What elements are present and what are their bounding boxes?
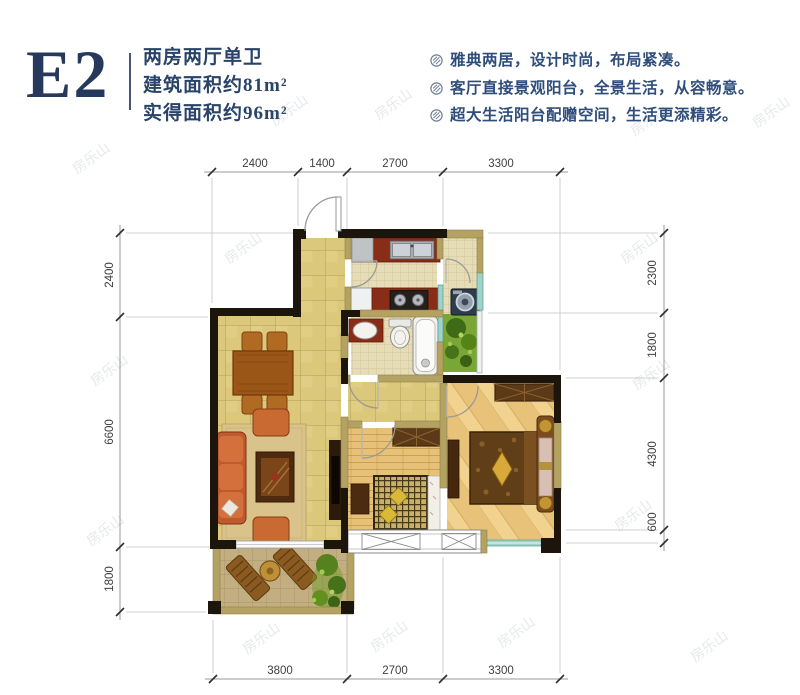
- bay-window: [348, 530, 481, 553]
- wardrobe-master: [495, 384, 554, 401]
- fridge: [351, 288, 372, 312]
- utility-window: [477, 272, 483, 310]
- bathtub: [413, 316, 438, 375]
- dimension-labels-top: 2400 1400 2700 3300: [242, 158, 514, 170]
- toilet: [389, 319, 411, 348]
- kitchen-side-window: [438, 285, 443, 312]
- coffee-table: [256, 452, 294, 502]
- stove: [390, 291, 428, 310]
- dimension-labels-left: 2400 6600 1800: [104, 262, 116, 592]
- dimension-labels-right: 2300 1800 4300 600: [647, 260, 659, 531]
- hallway-floor: [348, 382, 440, 422]
- utility-railing: [477, 311, 482, 373]
- svg-text:1400: 1400: [309, 158, 335, 170]
- armchair-top: [253, 409, 289, 436]
- armchair-bottom: [253, 517, 289, 544]
- svg-text:2400: 2400: [242, 158, 268, 170]
- entry-floor: [301, 238, 345, 316]
- wash-basin: [353, 322, 377, 339]
- sofa: [216, 432, 246, 524]
- bed-second: [374, 476, 440, 530]
- bathroom-window: [438, 316, 443, 342]
- svg-text:2700: 2700: [382, 665, 408, 677]
- dresser: [448, 440, 459, 498]
- svg-text:2400: 2400: [104, 262, 116, 288]
- floorplan-svg: 2400 1400 2700 3300 2400 6600 1800 2300: [0, 0, 800, 695]
- wardrobe-second: [393, 428, 440, 446]
- svg-text:600: 600: [647, 512, 659, 531]
- floorplan-card: 2400 1400 2700 3300 2400 6600 1800 2300: [0, 0, 800, 695]
- svg-text:3300: 3300: [488, 158, 514, 170]
- kitchen-cabinet: [352, 238, 373, 262]
- svg-text:3800: 3800: [267, 665, 293, 677]
- kitchen-sink: [390, 241, 434, 259]
- entrance-door: [305, 197, 341, 231]
- svg-text:6600: 6600: [104, 419, 116, 445]
- dimension-labels-bottom: 3800 2700 3300: [267, 665, 514, 677]
- nightstand: [351, 484, 369, 514]
- svg-text:4300: 4300: [647, 441, 659, 467]
- svg-text:1800: 1800: [104, 566, 116, 592]
- svg-text:2700: 2700: [382, 158, 408, 170]
- washing-machine: [451, 289, 479, 315]
- dining-table: [233, 351, 293, 395]
- svg-text:1800: 1800: [647, 332, 659, 358]
- svg-text:2300: 2300: [647, 260, 659, 286]
- svg-text:3300: 3300: [488, 665, 514, 677]
- tv-stand: [329, 440, 342, 520]
